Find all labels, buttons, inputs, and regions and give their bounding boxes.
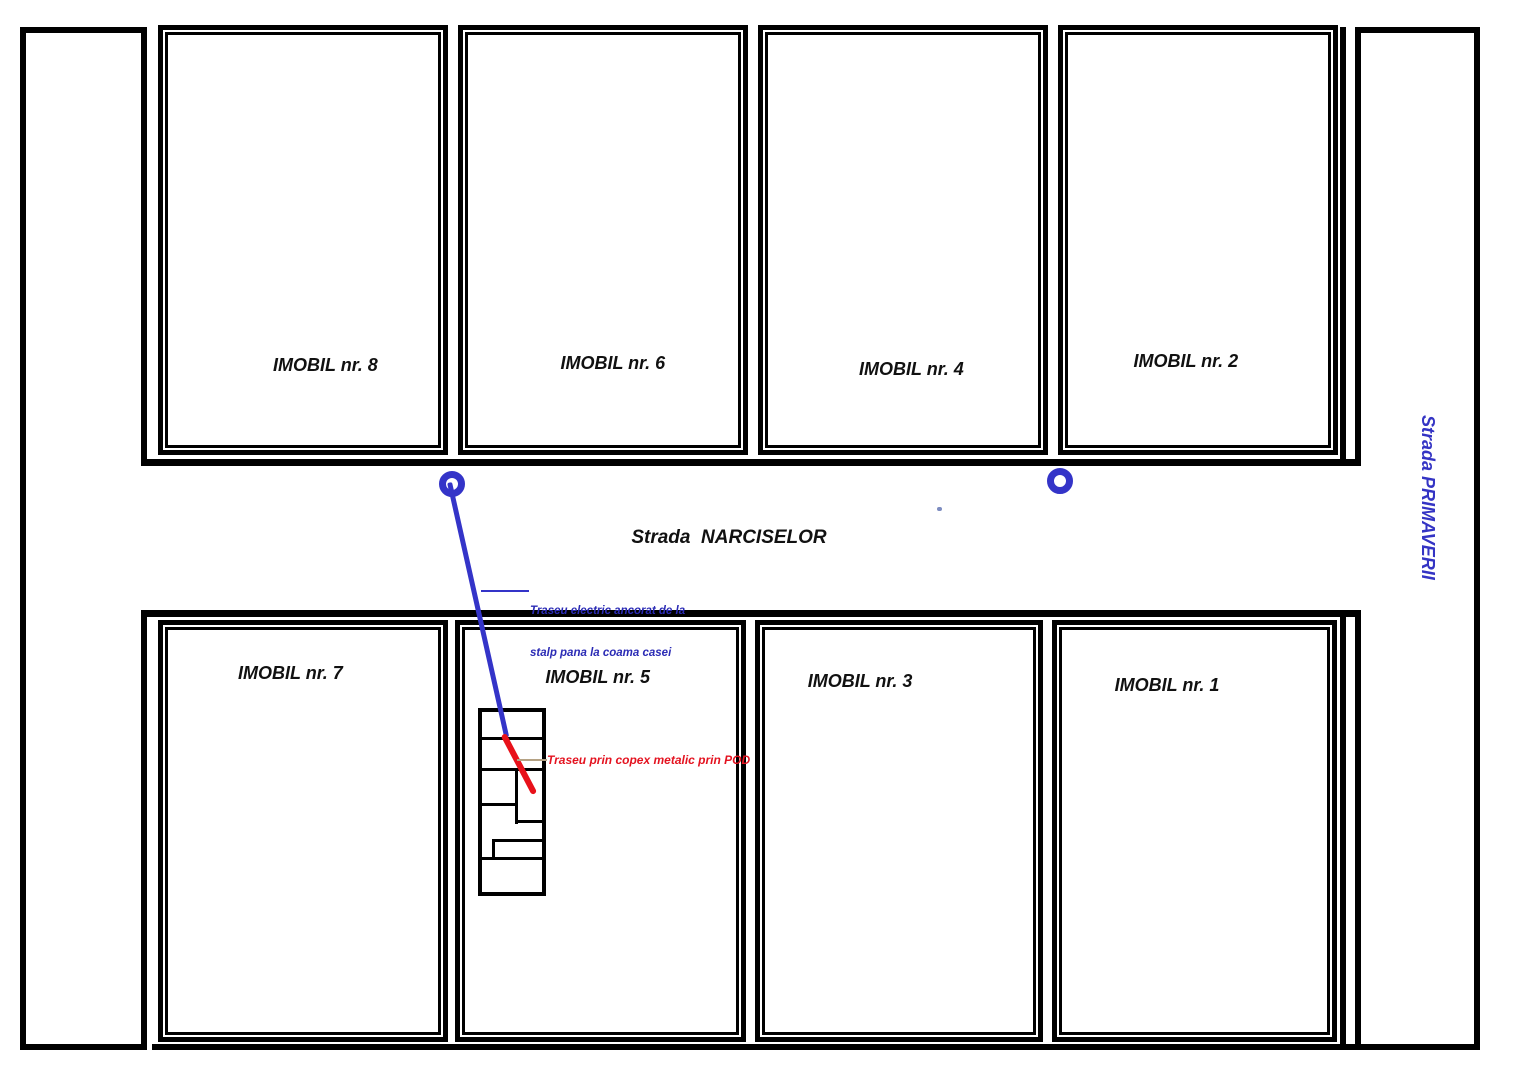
house-wall — [515, 820, 543, 823]
utility-pole-icon — [1047, 468, 1073, 494]
left-street-east-edge-lower — [141, 610, 147, 1050]
house-wall — [481, 768, 543, 771]
left-street-east-edge-upper — [141, 27, 147, 466]
bottom-block-south-edge — [152, 1044, 1361, 1050]
attic-note-connector-line — [517, 759, 547, 761]
plot-imobil-3: IMOBIL nr. 3 — [755, 620, 1043, 1042]
plot-imobil-4-label: IMOBIL nr. 4 — [859, 359, 964, 380]
primaverii-north-edge — [1355, 27, 1480, 33]
site-plan: IMOBIL nr. 8 IMOBIL nr. 6 IMOBIL nr. 4 I… — [0, 0, 1516, 1080]
plot-imobil-7-inner-fence — [165, 627, 441, 1035]
left-street-south-edge — [20, 1044, 146, 1050]
plot-imobil-8-label: IMOBIL nr. 8 — [273, 355, 378, 376]
narciselor-north-edge — [141, 459, 1361, 466]
plot-imobil-4: IMOBIL nr. 4 — [758, 25, 1048, 455]
plot-imobil-1-label: IMOBIL nr. 1 — [1115, 675, 1220, 696]
plot-imobil-7-label: IMOBIL nr. 7 — [238, 663, 343, 684]
plot-imobil-2: IMOBIL nr. 2 — [1058, 25, 1338, 455]
left-street-west-edge — [20, 27, 26, 1048]
house-wall — [481, 857, 543, 860]
bottom-block-east-edge — [1340, 610, 1346, 1050]
plot-imobil-4-inner-fence — [765, 32, 1041, 448]
aerial-route-annotation-line2: stalp pana la coama casei — [530, 646, 685, 660]
aerial-route-annotation-line1: Traseu electric ancorat de la — [530, 604, 685, 618]
top-block-east-edge — [1340, 27, 1346, 466]
house-wall — [492, 839, 543, 842]
small-dot-mark — [937, 507, 942, 511]
plot-imobil-6-inner-fence — [465, 32, 741, 448]
plot-imobil-6: IMOBIL nr. 6 — [458, 25, 748, 455]
plot-imobil-7: IMOBIL nr. 7 — [158, 620, 448, 1042]
left-street-north-edge — [20, 27, 146, 33]
plot-imobil-2-label: IMOBIL nr. 2 — [1134, 351, 1239, 372]
primaverii-south-edge — [1355, 1044, 1480, 1050]
narciselor-south-edge — [141, 610, 1361, 617]
plot-imobil-8: IMOBIL nr. 8 — [158, 25, 448, 455]
plot-imobil-2-inner-fence — [1065, 32, 1331, 448]
plot-imobil-3-label: IMOBIL nr. 3 — [808, 671, 913, 692]
primaverii-west-edge-upper — [1355, 27, 1361, 466]
aerial-note-connector-line — [481, 590, 529, 592]
primaverii-east-edge — [1474, 27, 1480, 1050]
aerial-route-annotation: Traseu electric ancorat de la stalp pana… — [530, 576, 685, 688]
house-wall — [481, 803, 518, 806]
attic-route-annotation: Traseu prin copex metalic prin POD — [547, 753, 750, 767]
plot-imobil-6-label: IMOBIL nr. 6 — [560, 353, 665, 374]
plot-imobil-8-inner-fence — [165, 32, 441, 448]
street-primaverii-label: Strada PRIMAVERII — [1416, 415, 1438, 607]
house-wall — [515, 768, 518, 824]
plot-imobil-1: IMOBIL nr. 1 — [1052, 620, 1337, 1042]
house-wall — [481, 737, 543, 740]
street-narciselor-label: Strada NARCISELOR — [599, 527, 859, 549]
primaverii-west-edge-lower — [1355, 610, 1361, 1050]
